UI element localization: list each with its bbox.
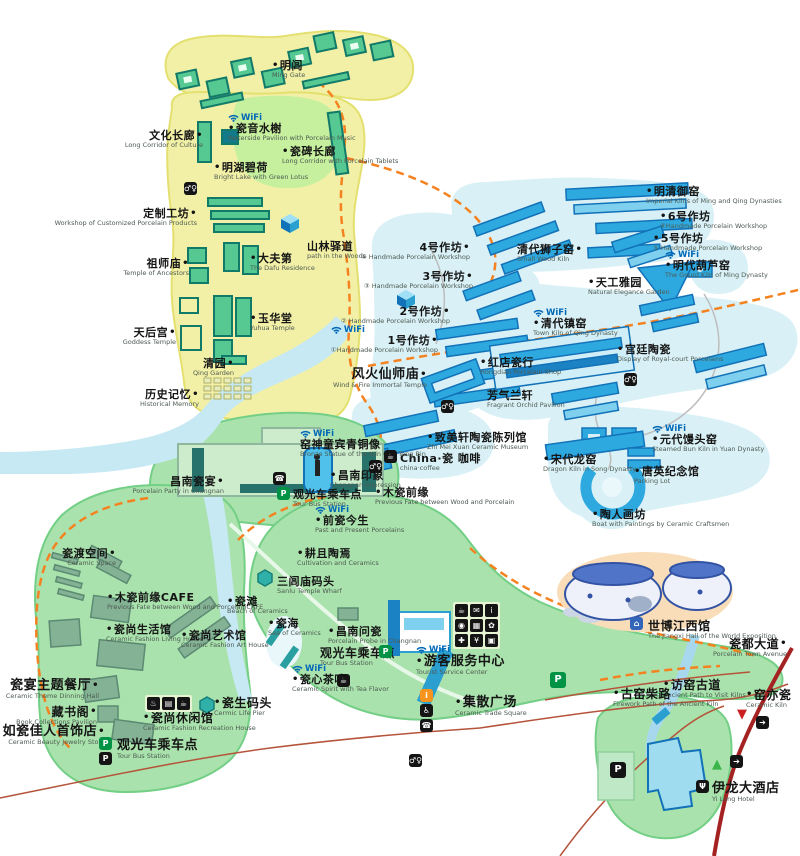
label-mingdai-huluyao-en: The Gourd Kiln of Ming Dynasty bbox=[665, 272, 768, 279]
marker-dot: • bbox=[90, 707, 97, 717]
marker-dot: • bbox=[613, 689, 620, 699]
label-qingdai-shiziyao: 清代狮子窑•Small Wood Kiln bbox=[517, 244, 582, 263]
marker-dot: • bbox=[652, 435, 659, 445]
marker-dot: • bbox=[455, 698, 462, 708]
label-yuandai-mantouyao: WiFi•元代馒头窑Steamed Bun Kiln in Yuan Dynas… bbox=[652, 424, 764, 453]
marker-dot: • bbox=[746, 690, 753, 700]
label-wenhua-changlang-en: Long Corridor of Culture bbox=[125, 142, 203, 149]
label-cangshu-ge: 藏书阁•Book Collections Pavilion bbox=[16, 706, 97, 726]
label-ciyan-restaurant-en: Ceramic Theme Dinning Hall bbox=[6, 693, 99, 700]
marker-dot: • bbox=[617, 345, 624, 355]
jiangxi-hall-icon: ⌂ bbox=[630, 617, 643, 630]
food-service-icon: ☕ bbox=[455, 604, 468, 617]
label-qingdai-zhenyao-en: Town Kiln of Qing Dynasty bbox=[533, 330, 618, 337]
currency-exchange-icon: ¥ bbox=[470, 634, 483, 647]
marker-dot: • bbox=[431, 336, 438, 346]
label-hongdian-cihang: •红店瓷行Hongdian Porcelain Shop bbox=[480, 357, 561, 376]
label-ruci-jiaren-jewelry: 如瓷佳人首饰店•Ceramic Beauty Jewelry Store bbox=[3, 725, 105, 746]
label-hongdian-cihang-en: Hongdian Porcelain Shop bbox=[480, 369, 561, 376]
label-cisheng-pier-en: Cermic Life Pier bbox=[214, 710, 272, 717]
parking-icon: P bbox=[379, 645, 392, 658]
marker-dot: • bbox=[268, 619, 275, 629]
wifi-icon: WiFi bbox=[665, 250, 768, 259]
label-cishang-art: •瓷尚艺术馆Ceramic Fashion Art House bbox=[181, 630, 269, 649]
label-yuandai-mantouyao-en: Steamed Bun Kiln in Yuan Dynasty bbox=[652, 446, 764, 453]
marker-dot: • bbox=[592, 510, 599, 520]
marker-dot: • bbox=[543, 455, 550, 465]
photo-service-icon: ◉ bbox=[455, 619, 468, 632]
label-taoren-huafang: •陶人画坊Boat with Paintings by Ceramic Craf… bbox=[592, 509, 729, 528]
marker-dot: • bbox=[330, 471, 337, 481]
label-shanlin-yidao-en: path in the Woods bbox=[307, 253, 366, 260]
label-ruci-jiaren-jewelry-en: Ceramic Beauty Jewelry Store bbox=[3, 739, 105, 746]
wifi-icon: WiFi bbox=[292, 664, 389, 673]
label-cidu-avenue: 瓷都大道•Porcelain Town Avenue bbox=[713, 638, 787, 658]
marker-dot: • bbox=[109, 549, 116, 559]
label-layer: •明闾Ming GateWiFi•瓷音水榭Waterside Pavilion … bbox=[0, 0, 800, 856]
label-tiangong-yayuan-en: Natural Elegance Garden bbox=[588, 289, 670, 296]
label-kiln-god-statue-en: Bronze Statue of the Kiln God Tong Bin bbox=[300, 451, 426, 458]
label-cidu-kongjian-en: Ceramic Space bbox=[62, 560, 116, 567]
label-workshop-5: •5号作坊⑤ Handmade Porcelain Workshop bbox=[653, 233, 762, 252]
label-changnan-wenci-en: Porcelain Probe in Changnan bbox=[328, 638, 421, 645]
information-icon: i bbox=[420, 689, 433, 702]
exit-icon: ➔ bbox=[730, 755, 743, 768]
label-zhimeixuan-museum: •致美轩陶瓷陈列馆Zhi Mei Xuan Ceramic Museum bbox=[427, 432, 528, 451]
parking-icon: P bbox=[99, 752, 112, 765]
telephone-icon: ☎ bbox=[273, 472, 286, 485]
marker-dot: • bbox=[653, 234, 660, 244]
marker-dot: • bbox=[328, 627, 335, 637]
label-gongting-taoci: •宫廷陶瓷Display of Royal-court Porcelains bbox=[617, 344, 723, 363]
recreation-house-icon-row: ♨▤☕ bbox=[145, 695, 192, 712]
label-fangqi-lanxuan-en: Fragrant Orchid Pavilion bbox=[487, 402, 565, 409]
marker-dot: • bbox=[106, 625, 113, 635]
label-tour-bus-west-en: Tour Bus Station bbox=[117, 753, 198, 760]
label-qingdai-zhenyao: WiFi•清代镇窑Town Kiln of Qing Dynasty bbox=[533, 308, 618, 337]
label-workshop-3: 3号作坊•③ Handmade Porcelain Workshop bbox=[364, 271, 473, 290]
marker-dot: • bbox=[181, 631, 188, 641]
marker-dot: • bbox=[588, 278, 595, 288]
parking-icon: P bbox=[550, 672, 566, 688]
wifi-icon: WiFi bbox=[533, 308, 618, 317]
label-jisan-square: •集散广场Ceramic Trade Square bbox=[455, 696, 527, 717]
label-ciyan-restaurant: 瓷宴主题餐厅•Ceramic Theme Dinning Hall bbox=[6, 679, 99, 700]
label-qianci-jinsheng: WiFi•前瓷今生Past and Present Porcelains bbox=[315, 505, 404, 534]
label-fangqi-lanxuan: 芳气兰轩Fragrant Orchid Pavilion bbox=[487, 390, 565, 409]
marker-dot: • bbox=[480, 358, 487, 368]
scenic-area-map: •明闾Ming GateWiFi•瓷音水榭Waterside Pavilion … bbox=[0, 0, 800, 856]
wifi-icon: WiFi bbox=[331, 325, 438, 334]
marker-dot: • bbox=[227, 597, 234, 607]
marker-dot: • bbox=[292, 675, 299, 685]
restroom-icon: ♂♀ bbox=[409, 754, 422, 767]
marker-dot: • bbox=[250, 254, 257, 264]
label-workshop-6: •6号作坊⑥Handmade Porcelain Workshop bbox=[660, 211, 767, 230]
marker-dot: • bbox=[660, 212, 667, 222]
marker-dot: • bbox=[182, 259, 189, 269]
label-guyao-chailu: •古窑柴路Firework Path of the Ancient Kiln bbox=[613, 688, 718, 708]
label-sanlumiao-wharf-en: Sanlu Temple Wharf bbox=[277, 588, 342, 595]
label-cishang-art-en: Ceramic Fashion Art House bbox=[181, 642, 269, 649]
marker-dot: • bbox=[169, 328, 176, 338]
label-cihai: •瓷海Sea of Ceramics bbox=[268, 618, 321, 637]
parking-icon: P bbox=[99, 737, 112, 750]
exit-icon: ➔ bbox=[756, 716, 769, 729]
marker-dot: • bbox=[315, 516, 322, 526]
label-workshop-6-en: ⑥Handmade Porcelain Workshop bbox=[660, 223, 767, 230]
marker-dot: • bbox=[282, 147, 289, 157]
label-workshop-2: 2号作坊•② Handmade Porcelain Workshop bbox=[341, 306, 450, 325]
label-guyao-chailu-en: Firework Path of the Ancient Kiln bbox=[613, 701, 718, 708]
marker-dot: • bbox=[665, 261, 672, 271]
label-fenghuo-xianshimiao-en: Wind & Fire Immortal Temple bbox=[333, 382, 427, 389]
label-tour-bus-west: 观光车乘车点Tour Bus Station bbox=[117, 739, 198, 760]
label-workshop-4-en: ④ Handmade Porcelain Workshop bbox=[361, 254, 470, 261]
marker-dot: • bbox=[143, 713, 150, 723]
label-mingqing-yuyao: •明清御窑Imperial Kilns of Ming and Qing Dyn… bbox=[646, 186, 782, 205]
entrance-marker-green: ▲ bbox=[712, 758, 722, 771]
label-changnan-wenci: •昌南问瓷Porcelain Probe in Changnan bbox=[328, 626, 421, 645]
label-muci-qianyuan: •木瓷前缘Previous Fate between Wood and Porc… bbox=[375, 487, 514, 506]
marker-dot: • bbox=[214, 163, 221, 173]
label-songdai-longyao-en: Dragon Kiln in Song Dynasty bbox=[543, 466, 636, 473]
label-qianci-jinsheng-en: Past and Present Porcelains bbox=[315, 527, 404, 534]
label-tangying-memorial-en: Parking Lot bbox=[634, 478, 699, 485]
entrance-marker-red: ▼ bbox=[737, 708, 747, 721]
restaurant-icon: Ψ bbox=[696, 780, 709, 793]
label-cisheng-pier: •瓷生码头Cermic Life Pier bbox=[214, 697, 272, 717]
marker-dot: • bbox=[420, 370, 427, 380]
label-workshop-4: 4号作坊•④ Handmade Porcelain Workshop bbox=[361, 242, 470, 261]
parking-icon: P bbox=[277, 487, 290, 500]
ticket-service-icon: ▦ bbox=[470, 619, 483, 632]
label-tourist-service-center: WiFi•游客服务中心Tourist Service Center bbox=[416, 645, 505, 676]
label-tiangong-yayuan: •天工雅园Natural Elegance Garden bbox=[588, 277, 670, 296]
marker-dot: • bbox=[634, 467, 641, 477]
label-qing-yuan: 清园•Qing Garden bbox=[193, 358, 234, 377]
gift-shop-icon: ✿ bbox=[485, 619, 498, 632]
label-gengqie-taoyan: •耕且陶焉Cultivation and Ceramics bbox=[297, 548, 379, 567]
restroom-icon: ♂♀ bbox=[624, 373, 637, 386]
label-mingdai-huluyao: WiFi•明代葫芦窑The Gourd Kiln of Ming Dynasty bbox=[665, 250, 768, 279]
marker-dot: • bbox=[227, 359, 234, 369]
first-aid-icon: ✚ bbox=[455, 634, 468, 647]
label-yilong-hotel-en: Yi Long Hotel bbox=[712, 796, 780, 803]
label-wenhua-changlang: 文化长廊•Long Corridor of Culture bbox=[125, 130, 203, 149]
wifi-icon: WiFi bbox=[652, 424, 764, 433]
marker-dot: • bbox=[98, 727, 105, 737]
label-ciyin-shuixie-en: Waterside Pavilion with Porcelain Music bbox=[228, 135, 356, 142]
label-qing-yuan-en: Qing Garden bbox=[193, 370, 234, 377]
label-zushi-miao-en: Temple of Ancestors bbox=[123, 270, 189, 277]
label-mingqing-yuyao-en: Imperial Kilns of Ming and Qing Dynastie… bbox=[646, 198, 782, 205]
marker-dot: • bbox=[217, 477, 224, 487]
telephone-icon: ☎ bbox=[420, 719, 433, 732]
label-workshop-3-en: ③ Handmade Porcelain Workshop bbox=[364, 283, 473, 290]
label-yao-yi-ci: •窑亦瓷Ceramic Kiln bbox=[746, 689, 791, 709]
label-workshop-1: WiFi1号作坊•①Handmade Porcelain Workshop bbox=[331, 325, 438, 354]
marker-dot: • bbox=[463, 243, 470, 253]
label-ming-gate: •明闾Ming Gate bbox=[272, 60, 305, 79]
label-zhimeixuan-museum-en: Zhi Mei Xuan Ceramic Museum bbox=[427, 444, 528, 451]
label-cishang-recreation-en: Ceramic Fashion Recreation House bbox=[143, 725, 256, 732]
wifi-icon: WiFi bbox=[300, 429, 426, 438]
internet-service-icon: ▣ bbox=[485, 634, 498, 647]
label-fenghuo-xianshimiao: 风火仙师庙•Wind & Fire Immortal Temple bbox=[333, 368, 427, 389]
marker-dot: • bbox=[214, 698, 221, 708]
accessibility-icon: ♿ bbox=[420, 704, 433, 717]
label-workshop-2-en: ② Handmade Porcelain Workshop bbox=[341, 318, 450, 325]
label-workshop-1-en: ①Handmade Porcelain Workshop bbox=[331, 347, 438, 354]
restroom-icon: ♂♀ bbox=[441, 400, 454, 413]
label-jisan-square-en: Ceramic Trade Square bbox=[455, 710, 527, 717]
label-changnan-ciyan-en: Porcelain Party in Changnan bbox=[133, 488, 224, 495]
label-lishi-jiyi-en: Historical Memory bbox=[140, 401, 199, 408]
information-icon: i bbox=[485, 604, 498, 617]
label-changnan-ciyan: 昌南瓷宴•Porcelain Party in Changnan bbox=[133, 476, 224, 495]
label-cidu-avenue-en: Porcelain Town Avenue bbox=[713, 651, 787, 658]
label-taoren-huafang-en: Boat with Paintings by Ceramic Craftsmen bbox=[592, 521, 729, 528]
label-tianhou-gong-en: Goddess Temple bbox=[123, 339, 176, 346]
marker-dot: • bbox=[250, 314, 257, 324]
lounge-icon: ▤ bbox=[162, 697, 175, 710]
marker-dot: • bbox=[466, 272, 473, 282]
marker-dot: • bbox=[190, 209, 197, 219]
marker-dot: • bbox=[646, 187, 653, 197]
marker-dot: • bbox=[272, 61, 279, 71]
marker-dot: • bbox=[427, 433, 434, 443]
restroom-icon: ♂♀ bbox=[369, 460, 382, 473]
label-dafu-di: •大夫第The Dafu Residence bbox=[250, 253, 315, 272]
marker-dot: • bbox=[92, 681, 99, 691]
label-gengqie-taoyan-en: Cultivation and Ceramics bbox=[297, 560, 379, 567]
label-yuhua-tang-en: Yuhua Temple bbox=[250, 325, 295, 332]
tea-service-icon: ☕ bbox=[177, 697, 190, 710]
label-songdai-longyao: •宋代龙窑Dragon Kiln in Song Dynasty bbox=[543, 454, 636, 473]
label-minghu-bihe-en: Bright Lake with Green Lotus bbox=[214, 174, 308, 181]
wifi-icon: WiFi bbox=[228, 113, 356, 122]
marker-dot: • bbox=[196, 131, 203, 141]
label-tourist-service-center-en: Tourist Service Center bbox=[416, 669, 505, 676]
label-lishi-jiyi: 历史记忆•Historical Memory bbox=[140, 389, 199, 408]
coffee-icon: ☕ bbox=[384, 450, 397, 463]
label-yuhua-tang: •玉华堂Yuhua Temple bbox=[250, 313, 295, 332]
marker-dot: • bbox=[780, 639, 787, 649]
massage-icon: ♨ bbox=[147, 697, 160, 710]
mail-service-icon: ✉ bbox=[470, 604, 483, 617]
label-ming-gate-en: Ming Gate bbox=[272, 72, 305, 79]
label-citan: •瓷滩Beach of Ceramics bbox=[227, 596, 288, 615]
label-tangying-memorial: •唐英纪念馆Parking Lot bbox=[634, 466, 699, 485]
label-china-coffee-en: china·coffee bbox=[400, 465, 481, 472]
teahouse-icon: ☕ bbox=[337, 674, 350, 687]
marker-dot: • bbox=[443, 307, 450, 317]
marker-dot: • bbox=[416, 657, 423, 667]
marker-dot: • bbox=[297, 549, 304, 559]
marker-dot: • bbox=[375, 488, 382, 498]
label-zushi-miao: 祖师庙•Temple of Ancestors bbox=[123, 258, 189, 277]
label-cihai-en: Sea of Ceramics bbox=[268, 630, 321, 637]
marker-dot: • bbox=[576, 245, 583, 255]
label-yao-yi-ci-en: Ceramic Kiln bbox=[746, 702, 791, 709]
label-dafu-di-en: The Dafu Residence bbox=[250, 265, 315, 272]
label-shanlin-yidao: 山林驿道path in the Woods bbox=[307, 241, 366, 260]
label-gongting-taoci-en: Display of Royal-court Porcelains bbox=[617, 356, 723, 363]
parking-icon: P bbox=[610, 762, 626, 778]
label-sanlumiao-wharf: 三闾庙码头Sanlu Temple Wharf bbox=[277, 576, 342, 595]
label-dingzhi-gongfang: 定制工坊•Workshop of Customized Porcelain Pr… bbox=[55, 208, 197, 227]
label-cidu-kongjian: 瓷渡空间•Ceramic Space bbox=[62, 548, 116, 567]
marker-dot: • bbox=[107, 593, 114, 603]
label-citan-en: Beach of Ceramics bbox=[227, 608, 288, 615]
label-ciyin-shuixie: WiFi•瓷音水榭Waterside Pavilion with Porcela… bbox=[228, 113, 356, 142]
label-yilong-hotel: 伊龙大酒店Yi Long Hotel bbox=[712, 782, 780, 803]
wifi-icon: WiFi bbox=[315, 505, 404, 514]
service-center-icon-grid: ☕✉i◉▦✿✚¥▣ bbox=[453, 602, 500, 649]
marker-dot: • bbox=[533, 319, 540, 329]
label-tianhou-gong: 天后宫•Goddess Temple bbox=[123, 327, 176, 346]
label-changnan-yinxiang: •昌南印象Changnan Impression bbox=[330, 470, 401, 489]
label-minghu-bihe: •明湖碧荷Bright Lake with Green Lotus bbox=[214, 162, 308, 181]
label-kiln-god-statue: WiFi窑神童宾青铜像Bronze Statue of the Kiln God… bbox=[300, 429, 426, 458]
marker-dot: • bbox=[228, 124, 235, 134]
restroom-icon: ♂♀ bbox=[184, 182, 197, 195]
label-qingdai-shiziyao-en: Small Wood Kiln bbox=[517, 256, 582, 263]
label-dingzhi-gongfang-en: Workshop of Customized Porcelain Product… bbox=[55, 220, 197, 227]
marker-dot: • bbox=[192, 390, 199, 400]
